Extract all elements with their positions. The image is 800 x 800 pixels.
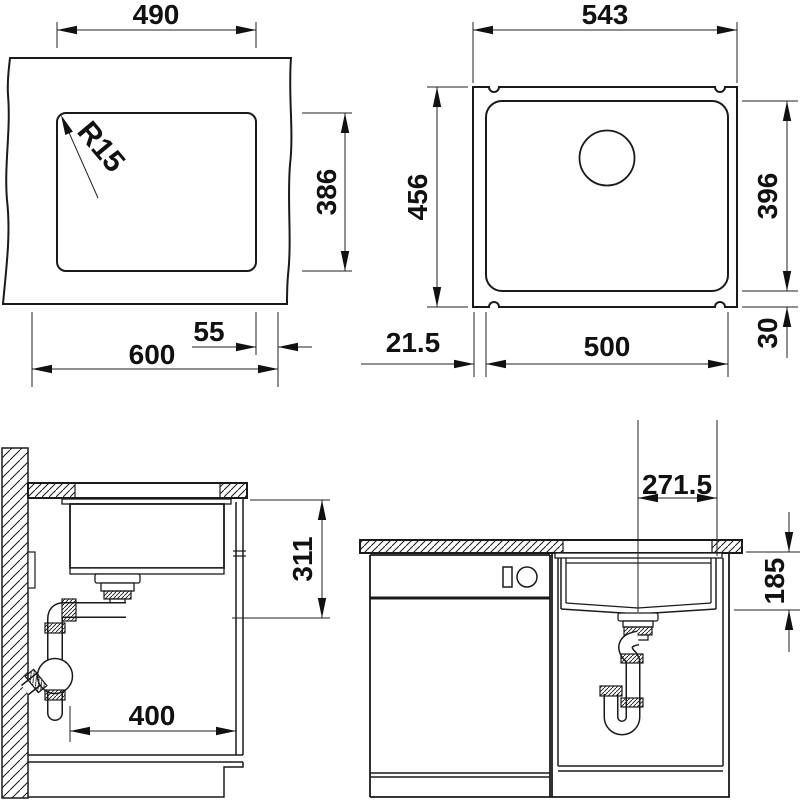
- countertop-front-hatch-left: [360, 540, 563, 553]
- dim-label: 490: [133, 0, 180, 30]
- bowl-bottom-thickness: [70, 568, 224, 574]
- dishwasher-button: [503, 567, 512, 587]
- dim-label: 185: [759, 558, 790, 605]
- dim-label: 55: [193, 316, 224, 347]
- wall-batten: [28, 552, 35, 588]
- dim-label: 386: [311, 169, 342, 216]
- dim-label: 396: [752, 173, 783, 220]
- cutout-view: 490 R15 386 55: [3, 0, 352, 387]
- drain-strainer: [95, 574, 140, 604]
- drain-pipe: [25, 599, 126, 713]
- dishwasher-front: [370, 555, 550, 797]
- dim-rim-offset: 21.5: [361, 312, 486, 377]
- dim-label: 456: [402, 174, 433, 221]
- drain-trap-front: [600, 613, 658, 728]
- sink-bowl: [486, 101, 728, 291]
- dim-cutout-depth: 386: [302, 113, 352, 271]
- countertop-hatch-right: [220, 483, 247, 498]
- dim-rim-back: 30: [742, 307, 798, 358]
- dim-label: 30: [752, 317, 783, 348]
- dim-label: 543: [582, 0, 629, 30]
- dim-drain-center-offset: 271.5: [638, 420, 717, 556]
- dim-edge-offset: 55: [192, 312, 312, 387]
- drain-hole: [580, 131, 635, 186]
- dim-cutout-width: 490: [57, 0, 256, 48]
- dim-label: 500: [584, 331, 631, 362]
- technical-drawing-page: 490 R15 386 55: [0, 0, 800, 800]
- dim-drain-height: 311: [232, 500, 330, 618]
- sink-top-view: 543 456 396 30: [361, 0, 798, 377]
- dim-outer-depth: 456: [402, 87, 468, 307]
- dim-outer-width: 543: [473, 0, 737, 83]
- side-section-view: 311 400: [2, 448, 330, 798]
- bowl-section: [70, 504, 224, 568]
- sink-drawing-svg: 490 R15 386 55: [0, 0, 800, 800]
- dim-label: 311: [287, 536, 318, 581]
- dim-bowl-width: 500: [486, 312, 728, 377]
- dim-depth-below-top: 185: [734, 512, 800, 652]
- dim-label: 21.5: [386, 327, 441, 358]
- dim-bowl-depth: 396: [742, 101, 798, 291]
- dim-label: 400: [129, 700, 176, 731]
- wall-section: [2, 448, 28, 798]
- dim-label: 271.5: [642, 469, 712, 500]
- dim-clearance-width: 400: [70, 700, 236, 742]
- countertop-hatch-left: [28, 483, 75, 498]
- dishwasher-knob: [517, 567, 537, 587]
- dim-label: 600: [129, 339, 176, 370]
- front-section-view: 271.5 185: [360, 420, 800, 797]
